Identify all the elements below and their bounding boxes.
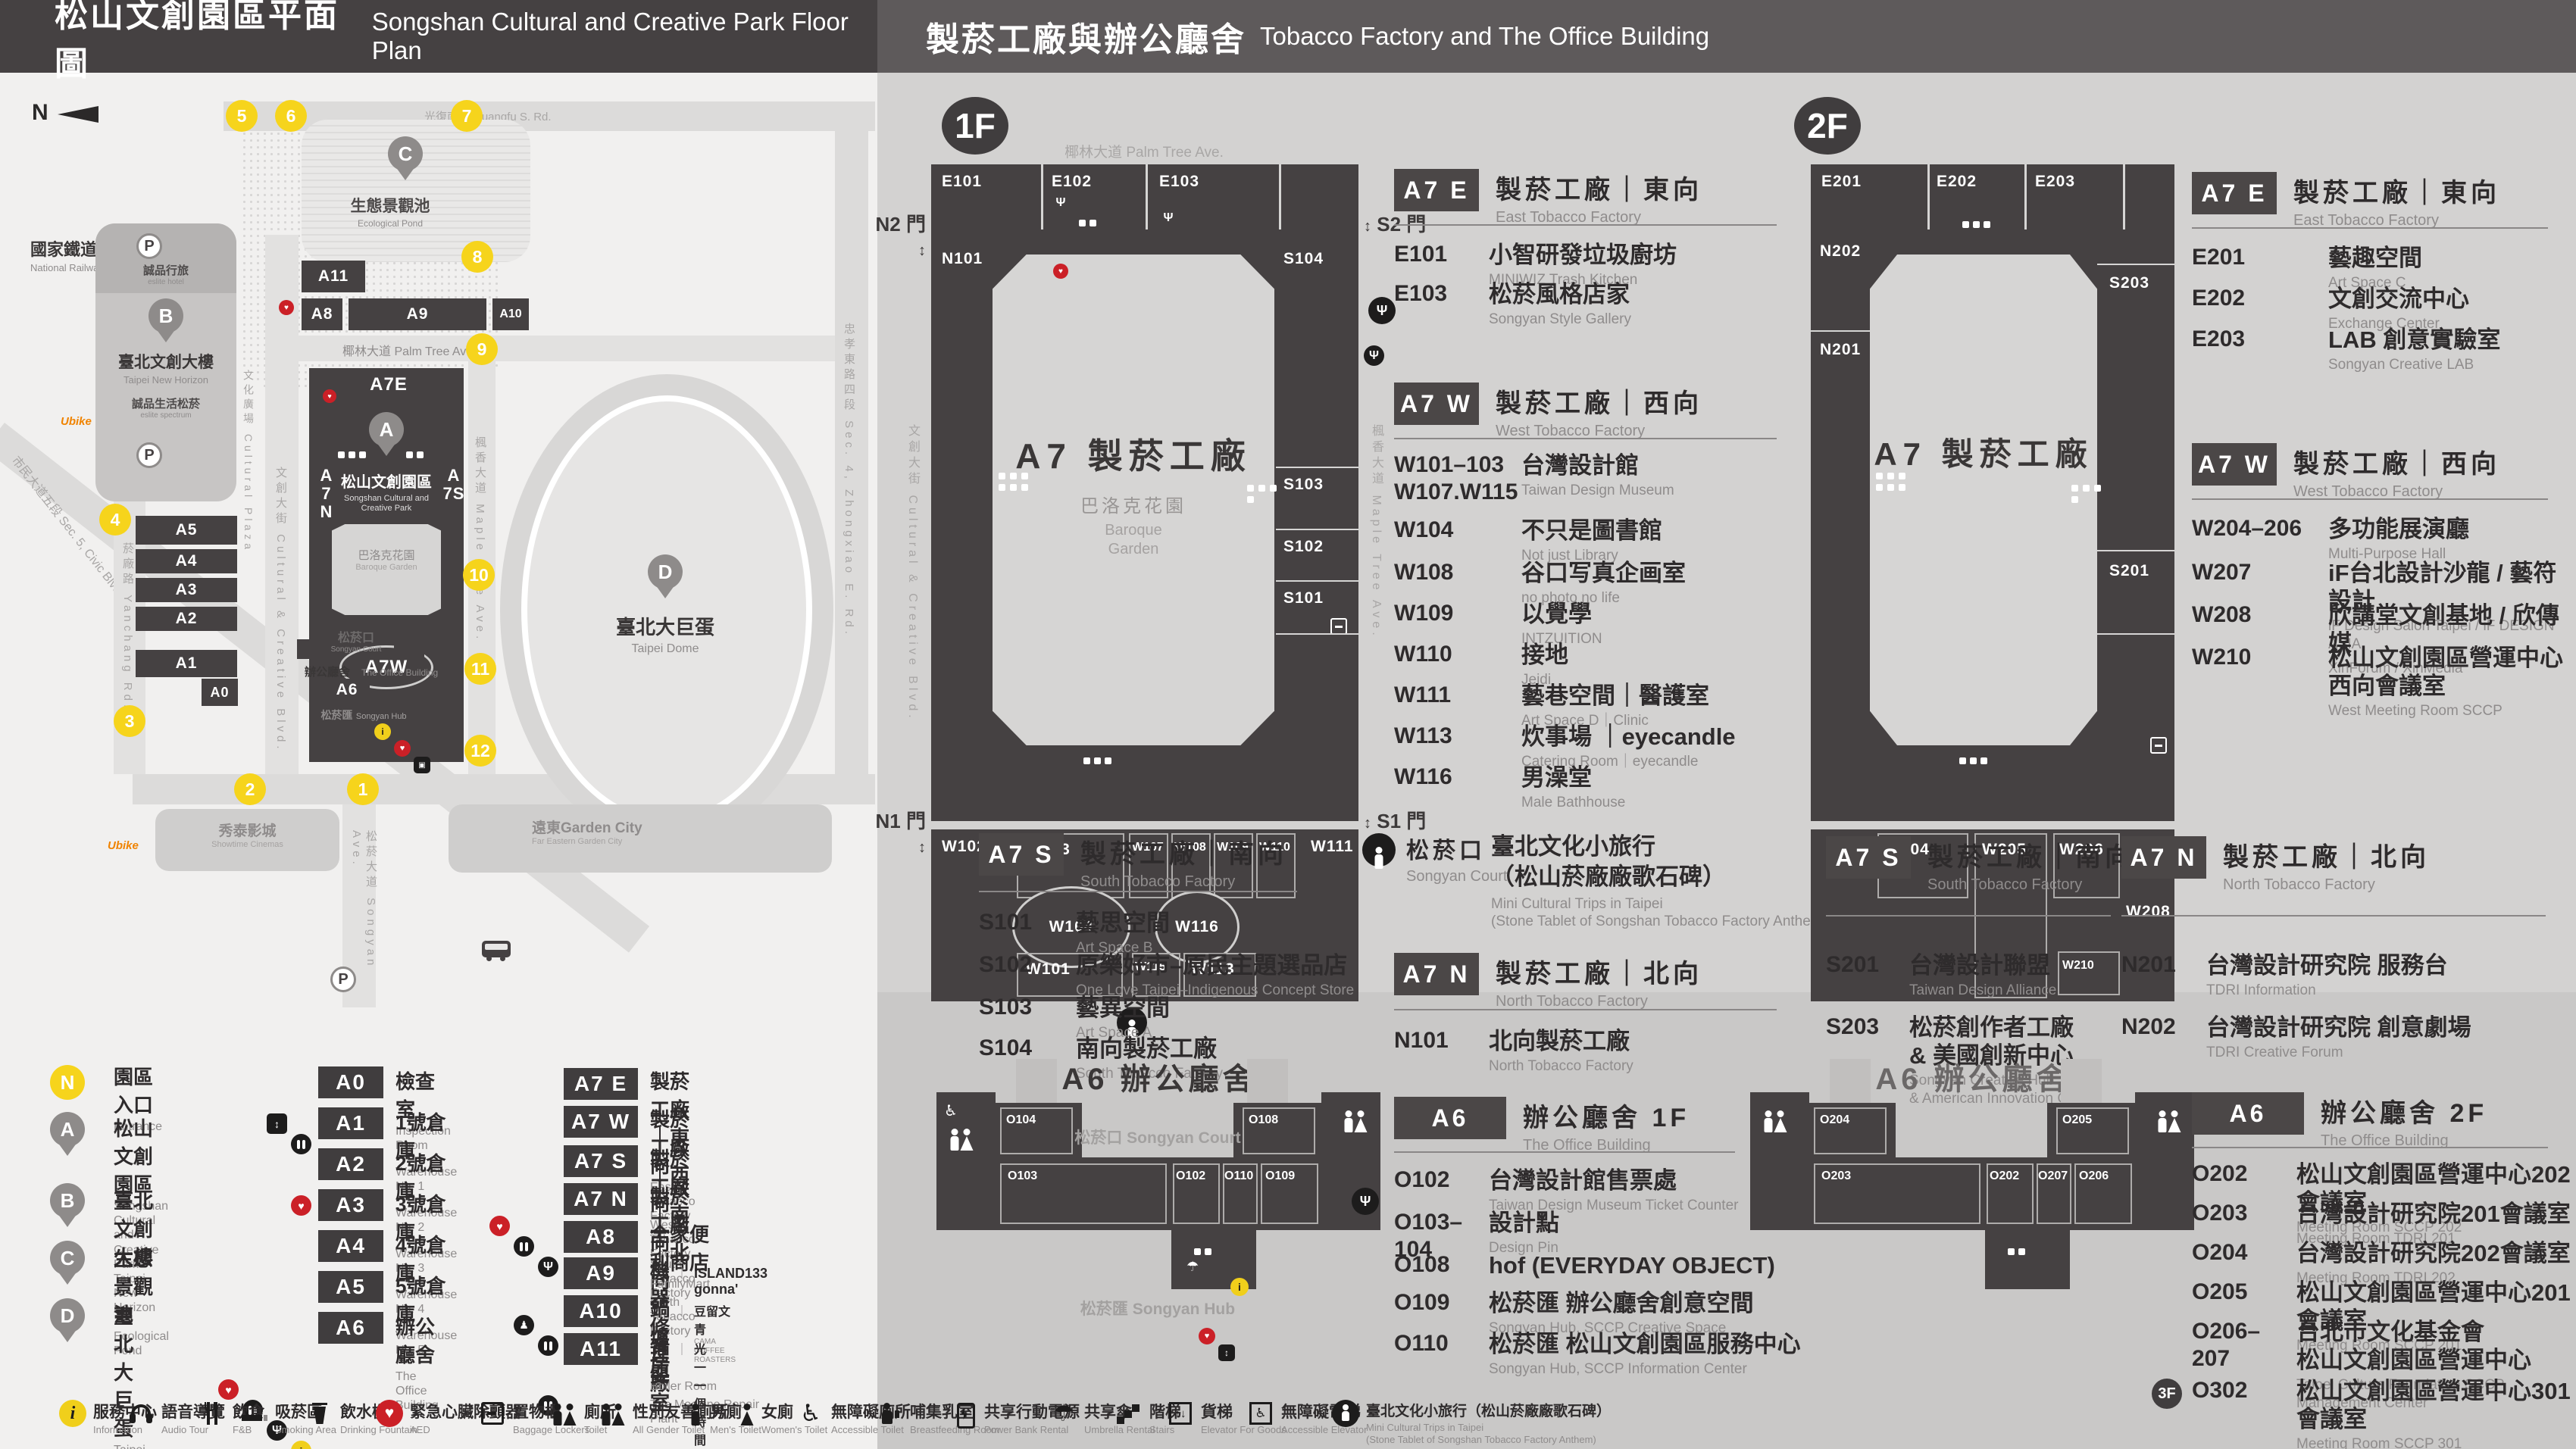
fnb-icon-legend-a7e — [538, 1257, 558, 1277]
legend-a7w-tag: A7 W — [564, 1106, 638, 1138]
scp-map-label: 松山文創園區 Songshan Cultural and Creative Pa… — [317, 470, 456, 514]
legend-a2-tag: A2 — [318, 1148, 383, 1180]
section-tag: A7 E — [2192, 172, 2277, 214]
room-separator — [1927, 164, 1930, 230]
room-separator — [2097, 633, 2174, 635]
legend-a0-tag: A0 — [318, 1066, 383, 1098]
taipei-dome-inner — [521, 395, 812, 824]
court-icon-legend-a7w: ♟ — [514, 1315, 534, 1335]
section-rule — [2192, 498, 2548, 500]
floor-badge-3f: 3F — [2152, 1379, 2182, 1409]
toilet-icons-a6-2f-left — [1759, 1107, 1790, 1132]
map-room-label: O110 — [1224, 1170, 1253, 1183]
songyan-hub-park-label: 松菸匯 Songyan Hub — [318, 707, 409, 723]
entrance-circle-1: 1 — [347, 773, 379, 805]
gate-n1-label: N1 門 ↕ — [865, 806, 926, 857]
strip-item-mini-trip: 臺北文化小旅行（松山菸廠廠歌石碑）Mini Cultural Trips in … — [1332, 1400, 1611, 1445]
block-a8: A8 — [302, 298, 342, 330]
legend-a1-tag: A1 — [318, 1107, 383, 1139]
legend-a6-tag: A6 — [318, 1312, 383, 1344]
section-rule — [1394, 438, 1777, 439]
smoking-area-icon — [241, 1400, 268, 1427]
toilet-icon-legend-a1 — [291, 1134, 311, 1154]
map-room-label: O204 — [1820, 1113, 1849, 1127]
garden-city-zh: 遠東Garden City — [532, 817, 832, 837]
list-row: W204–206多功能展演廳Multi-Purpose Hall — [2192, 515, 2469, 564]
hub-zh: 松菸匯 — [320, 709, 352, 721]
audio-tour-icon — [127, 1400, 155, 1427]
legend-a10-tag: A10 — [564, 1295, 638, 1327]
legend-marker-a: A — [50, 1112, 85, 1147]
map-room-label: S101 — [1283, 589, 1324, 607]
locker-icon-map: ▣ — [414, 757, 430, 773]
section-tag: A7 W — [2192, 443, 2277, 486]
map-room-label: O104 — [1006, 1113, 1036, 1127]
mens-toilet-icon — [688, 1400, 703, 1427]
locker-icon-2f-s201 — [2150, 737, 2167, 754]
umbrella-rental-icon — [1050, 1400, 1077, 1427]
new-horizon-label: 臺北文創大樓 Taipei New Horizon 誠品生活松菸 eslite … — [98, 350, 233, 420]
map-room-label: O102 — [1176, 1170, 1205, 1183]
map-room-label: E103 — [1159, 173, 1199, 191]
block-a2: A2 — [136, 607, 237, 631]
map-room-label: S102 — [1283, 538, 1324, 556]
fnb-icon-list-e103 — [1364, 345, 1384, 366]
street-blvd-label: 文創大街 Cultural & Creative Blvd. — [273, 467, 289, 753]
facility-cluster-park-2 — [406, 451, 424, 458]
aed-icon-1f: ♥ — [1053, 264, 1068, 279]
section-tag: A6 — [1394, 1097, 1506, 1139]
floor-badge-2f: 2F — [1794, 97, 1861, 155]
compass-arrow-icon — [58, 106, 98, 123]
header-right: 製菸工廠與辦公廳舍 Tobacco Factory and The Office… — [877, 0, 2576, 73]
dome-label: 臺北大巨蛋 Taipei Dome — [589, 612, 741, 656]
map-room-label: S203 — [2109, 274, 2149, 292]
block-a9: A9 — [349, 298, 486, 330]
legend-a9-tag: A9 — [564, 1257, 638, 1289]
map-room-label: N101 — [942, 250, 983, 268]
block-a1: A1 — [136, 650, 237, 677]
info-icon-a6-1f: i — [1230, 1278, 1249, 1296]
blvd-left-label-1f: 文創大街 Cultural & Creative Blvd. — [903, 424, 921, 722]
eslite-hotel-en: eslite hotel — [111, 278, 221, 286]
a7-2f-courtyard — [1870, 255, 2097, 745]
block-a2-label: A2 — [176, 610, 198, 627]
list-row: E103松菸風格店家Songyan Style Gallery — [1394, 280, 1631, 329]
all-gender-toilet-icon — [599, 1400, 626, 1427]
entrance-circle-2: 2 — [234, 773, 266, 805]
showtime-zh: 秀泰影城 — [155, 820, 339, 840]
aed-icon-map-4: ♥ — [394, 740, 411, 757]
block-a8-label: A8 — [311, 305, 333, 323]
legend-a11-tag: A11 — [564, 1333, 638, 1365]
shuttle-arrow-icon: ↕ — [918, 242, 926, 259]
shuttle-arrow-icon: ↕ — [918, 839, 926, 856]
pond-label: 生態景觀池 Ecological Pond — [333, 194, 447, 229]
scp-zh: 松山文創園區 — [317, 470, 456, 492]
entrance-circle-3: 3 — [114, 705, 145, 737]
bus-stop-icon — [482, 941, 511, 957]
map-room-label: O203 — [1821, 1170, 1851, 1183]
a6-1f-chimney-left — [1016, 1059, 1057, 1103]
pin-b: B — [148, 298, 183, 333]
entrance-circle-7: 7 — [451, 100, 483, 132]
womens-toilet-icon — [739, 1400, 755, 1427]
list-row: N101北向製菸工廠North Tobacco Factory — [1394, 1027, 1633, 1076]
room-separator — [2024, 164, 2027, 230]
block-a3-label: A3 — [176, 581, 198, 598]
accessible-elevator-icon — [1247, 1400, 1274, 1427]
facility-cluster-park-1 — [338, 451, 366, 458]
section-tag: A7 N — [1394, 953, 1479, 995]
entrance-circle-6: 6 — [275, 100, 307, 132]
facility-cluster-2f-right — [2071, 485, 2105, 503]
section-a7e-2f: A7 E製菸工廠｜東向East Tobacco Factory — [2192, 172, 2500, 230]
street-yanchang-label: 菸廠路 Yanchang Rd. — [120, 542, 136, 711]
toilet-icon-legend-a7w — [538, 1335, 558, 1356]
block-a5-label: A5 — [176, 521, 198, 539]
breastfeeding-room-icon — [876, 1400, 903, 1427]
legend: N 園區入口Entrance A 松山文創園區Songshan Cultural… — [0, 0, 20, 409]
a6-1f-chimney-right — [1247, 1059, 1288, 1103]
section-a7w-2f: A7 W製菸工廠｜西向West Tobacco Factory — [2192, 443, 2500, 501]
pin-c: C — [388, 136, 423, 171]
map-room-label: E101 — [942, 173, 982, 191]
parking-icon-2: P — [136, 442, 162, 468]
section-rule — [2192, 227, 2548, 229]
palm-ave-label-1f: 椰林大道 Palm Tree Ave. — [1008, 141, 1280, 161]
map-room-label: W111 — [1311, 838, 1354, 856]
room-separator — [1276, 580, 1358, 582]
information-icon — [59, 1400, 86, 1427]
section-a7e-1f: A7 E製菸工廠｜東向East Tobacco Factory — [1394, 169, 1702, 226]
map-room-label: O205 — [2062, 1113, 2092, 1127]
dome-en: Taipei Dome — [589, 642, 741, 656]
entrance-circle-10: 10 — [463, 559, 495, 591]
locker-icon-1f-s101 — [1330, 618, 1347, 635]
aed-icon-map-1: ♥ — [279, 300, 294, 315]
page-title-left-en: Songshan Cultural and Creative Park Floo… — [372, 8, 877, 65]
eslite-store-zh: 誠品生活松菸 — [98, 395, 233, 411]
entrance-circle-4: 4 — [99, 504, 131, 536]
header-left: 松山文創園區平面圖 Songshan Cultural and Creative… — [0, 0, 877, 73]
new-horizon-en: Taipei New Horizon — [98, 374, 233, 386]
block-a6: A6 — [324, 679, 370, 701]
garden-city-en: Far Eastern Garden City — [532, 837, 832, 846]
legend-a8-tag: A8 — [564, 1221, 638, 1253]
maple-right-label-1f: 楓香大道 Maple Tree Ave. — [1367, 424, 1385, 639]
parking-icon-3: P — [330, 967, 356, 992]
toilet-icons-a6-1f-right — [1340, 1107, 1370, 1132]
section-a7s-2f: A7 S製菸工廠｜南向South Tobacco Factory — [1826, 836, 2134, 894]
pond-zh: 生態景觀池 — [333, 194, 447, 217]
facility-cluster-2f-top — [1962, 221, 1990, 228]
page-title-right-zh: 製菸工廠與辦公廳舍 — [926, 12, 1246, 61]
baroque-garden-zh-1f: 巴洛克花園 — [993, 491, 1274, 517]
list-row: O108hof (EVERYDAY OBJECT) — [1394, 1251, 1775, 1282]
shuttle-arrow-icon: ↕ — [1364, 218, 1371, 235]
info-icon-map: i — [374, 723, 391, 740]
aed-icon-map-2: ♥ — [323, 389, 336, 403]
section-rule — [2192, 1147, 2548, 1148]
section-rule — [2121, 915, 2546, 917]
map-room-label: E202 — [1937, 173, 1977, 191]
legend-a6-text: 辦公廳舍The Office Building — [395, 1312, 439, 1413]
section-tag: A6 — [2192, 1092, 2304, 1135]
office-building-park-label: 辦公廳舍 The Office Building — [305, 664, 438, 679]
street-zhongxiao-label: 忠孝東路四段 Sec. 4, Zhongxiao E. Rd. — [841, 323, 857, 638]
list-row: W101–103 W107.W115台灣設計館Taiwan Design Mus… — [1394, 451, 1674, 506]
block-a0: A0 — [202, 679, 238, 706]
block-a7e-label: A7E — [355, 374, 423, 395]
showtime-building: 秀泰影城 Showtime Cinemas — [155, 809, 339, 871]
map-room-label: O103 — [1008, 1170, 1037, 1183]
aed-icon-legend-a7e: ♥ — [489, 1216, 510, 1236]
baroque-zh: 巴洛克花園 — [332, 547, 441, 563]
block-a4-label: A4 — [176, 552, 198, 570]
park-map: N 光復南路 Guangfu S. Rd. 市民大道五段 Sec. 5, Civ… — [0, 73, 877, 1007]
section-a7n-1f: A7 N製菸工廠｜北向North Tobacco Factory — [1394, 953, 1702, 1010]
songyan-court-a6-label: 松菸口 Songyan Court — [1067, 1126, 1249, 1148]
entrance-circle-11: 11 — [464, 653, 496, 685]
list-row: E203LAB 創意實驗室Songyan Creative LAB — [2192, 326, 2500, 374]
page-title-right-en: Tobacco Factory and The Office Building — [1260, 22, 1709, 51]
block-a10-label: A10 — [499, 308, 521, 320]
facility-cluster-2f-bottom — [1959, 757, 1987, 764]
gate-n2-label: N2 門 ↕ — [865, 209, 926, 261]
block-a10: A10 — [492, 298, 529, 330]
map-room-label: W208 — [2126, 903, 2171, 921]
map-room-label: S104 — [1283, 250, 1324, 268]
section-rule — [979, 891, 1297, 892]
room-separator — [2097, 550, 2174, 551]
goods-elevator-icon — [1167, 1400, 1194, 1427]
list-row: W104不只是圖書館Not just Library — [1394, 517, 1662, 565]
map-room-label: E102 — [1052, 173, 1092, 191]
section-rule — [1394, 1151, 1735, 1153]
section-tag: A7 N — [2121, 836, 2206, 879]
legend-a7e-tag: A7 E — [564, 1068, 638, 1100]
facility-cluster-2f-left — [1876, 473, 1909, 491]
toilet-icon-legend-a7e — [514, 1236, 534, 1257]
baroque-en: Baroque Garden — [332, 563, 441, 572]
map-room-label: S201 — [2109, 562, 2149, 580]
section-tag: A7 W — [1394, 383, 1479, 425]
brand-island133: ISLAND133 gonna' — [694, 1266, 767, 1298]
block-a1-label: A1 — [176, 654, 198, 672]
list-row: N202台灣設計研究院 創意劇場TDRI Creative Forum — [2121, 1013, 2471, 1062]
map-room-label: N201 — [1820, 341, 1861, 359]
floor-badge-1f: 1F — [942, 97, 1008, 155]
shuttle-arrow-icon: ↕ — [1364, 815, 1371, 832]
section-a7s-1f: A7 S製菸工廠｜南向South Tobacco Factory — [979, 833, 1287, 891]
elevator-icon-a6-1f: ↕ — [1218, 1344, 1235, 1361]
cultural-plaza-label: 文化廣場 Cultural Plaza — [241, 370, 256, 553]
section-rule — [1394, 224, 1777, 226]
fnb-icon-1f-e102 — [1053, 195, 1068, 211]
legend-marker-b: B — [50, 1183, 85, 1218]
room-separator — [1276, 633, 1358, 635]
section-rule — [1394, 1009, 1777, 1010]
entrance-circle-9: 9 — [466, 333, 498, 365]
room-separator — [1041, 164, 1043, 230]
list-row: S102原樂好市–原民主題選品店One Love Taipei–Indigeno… — [979, 951, 1354, 1000]
ubike-label-2: Ubike — [108, 839, 139, 852]
songyan-hub-a6-label: 松菸匯 Songyan Hub — [1067, 1297, 1249, 1319]
a6-2f-chimney-left — [1830, 1059, 1871, 1103]
mini-cultural-trip-icon — [1332, 1400, 1359, 1427]
compass-label: N — [32, 100, 48, 126]
room-separator — [1279, 164, 1281, 230]
baroque-garden-en-1f: Baroque Garden — [993, 521, 1274, 559]
toilet-icon — [550, 1400, 577, 1427]
list-row: W210松山文創園區營運中心 西向會議室West Meeting Room SC… — [2192, 644, 2563, 720]
garden-city-building: 遠東Garden City Far Eastern Garden City — [449, 804, 832, 873]
section-a6-2f: A6辦公廳舍 2FThe Office Building — [2192, 1092, 2487, 1150]
section-tag: A7 S — [979, 833, 1064, 876]
block-a11-label: A11 — [318, 267, 349, 285]
toilet-icons-a6-1f-left — [946, 1126, 976, 1150]
room-separator — [2123, 164, 2125, 230]
aed-icon-legend-a2: ♥ — [291, 1195, 311, 1216]
section-a6-1f: A6辦公廳舍 1FThe Office Building — [1394, 1097, 1690, 1154]
fnb-icon-a6-right: Ψ — [1352, 1188, 1379, 1215]
street-maple-label: 楓香大道 Maple Tree Ave. — [472, 436, 488, 642]
map-room-label: W210 — [2062, 959, 2094, 973]
a6-2f-chimney-right — [2061, 1059, 2102, 1103]
aed-icon-a6-1f: ♥ — [1199, 1328, 1215, 1344]
a7-1f-title: A7 製菸工廠 — [993, 429, 1274, 479]
entrance-circle-8: 8 — [461, 241, 493, 273]
room-separator — [1276, 467, 1358, 468]
scp-en: Songshan Cultural and Creative Park — [317, 494, 456, 514]
list-row: S101藝思空間Art Space B — [979, 909, 1170, 957]
baggage-locker-icon — [479, 1400, 506, 1427]
map-room-label: E203 — [2035, 173, 2075, 191]
block-a0-label: A0 — [210, 685, 229, 700]
facility-cluster-a6-1f-stub — [1194, 1248, 1211, 1255]
block-a11: A11 — [302, 261, 365, 292]
list-row: O302松山文創園區營運中心301會議室Meeting Room SCCP 30… — [2192, 1377, 2576, 1449]
room-separator — [1276, 529, 1358, 530]
songyan-court-attraction: 臺北文化小旅行 （松山菸廠廠歌石碑）Mini Cultural Trips in… — [1491, 832, 1827, 931]
map-room-label: O207 — [2038, 1170, 2068, 1183]
info-icon-legend-a6: i — [291, 1441, 311, 1449]
entrance-circle-12: 12 — [464, 735, 496, 767]
hub-en: Songyan Hub — [356, 712, 407, 721]
room-box-w210 — [2058, 951, 2120, 995]
legend-a7n-tag: A7 N — [564, 1183, 638, 1215]
umbrella-icon-a6-1f: ☂ — [1186, 1259, 1199, 1275]
a6-2f-stub — [1985, 1230, 2070, 1289]
block-a5: A5 — [136, 516, 237, 545]
section-a7w-1f: A7 W製菸工廠｜西向West Tobacco Factory — [1394, 383, 1702, 440]
block-a3: A3 — [136, 578, 237, 602]
floor-plan-sheet: 松山文創園區平面圖 Songshan Cultural and Creative… — [0, 0, 2576, 1449]
accessible-toilet-icon — [797, 1400, 824, 1427]
dome-zh: 臺北大巨蛋 — [589, 612, 741, 640]
list-row: O110松菸匯 松山文創園區服務中心Songyan Hub, SCCP Info… — [1394, 1330, 1801, 1379]
list-row: N201台灣設計研究院 服務台TDRI Information — [2121, 951, 2448, 1000]
map-room-label: O206 — [2079, 1170, 2109, 1183]
map-room-label: O108 — [1249, 1113, 1278, 1127]
aed-icon — [376, 1400, 403, 1427]
room-separator — [1146, 164, 1148, 230]
facility-cluster-a6-2f-stub — [2008, 1248, 2025, 1255]
a6-wing-right — [394, 639, 424, 659]
list-row: O102台灣設計館售票處Taiwan Design Museum Ticket … — [1394, 1166, 1738, 1215]
showtime-en: Showtime Cinemas — [155, 840, 339, 849]
elevator-icon-legend-a1: ↕ — [267, 1113, 287, 1134]
fnb-icon — [199, 1400, 226, 1427]
pin-d: D — [648, 554, 683, 589]
facility-cluster-1f-top — [1079, 220, 1096, 226]
pin-a: A — [369, 412, 404, 447]
section-tag: A7 S — [1826, 836, 1911, 879]
legend-a7s-tag: A7 S — [564, 1145, 638, 1177]
legend-a5-tag: A5 — [318, 1271, 383, 1303]
room-separator — [1811, 330, 1870, 332]
map-room-label: N202 — [1820, 242, 1861, 261]
map-room-label: E201 — [1821, 173, 1862, 191]
aed-icon-legend-a6: ♥ — [218, 1379, 239, 1400]
block-a9-label: A9 — [407, 305, 429, 323]
stairs-icon — [1115, 1400, 1143, 1427]
accessible-icon-a6-1f: ♿ — [944, 1101, 958, 1120]
a6-wing-left — [297, 639, 327, 659]
pond-en: Ecological Pond — [333, 218, 447, 229]
legend-marker-d: D — [50, 1298, 85, 1333]
legend-marker-c: C — [50, 1241, 85, 1276]
block-a6-label: A6 — [336, 681, 358, 698]
legend-a4-tag: A4 — [318, 1230, 383, 1262]
drinking-fountain-icon — [306, 1400, 333, 1427]
toilet-icons-a6-2f-right — [2153, 1107, 2184, 1132]
map-room-label: W116 — [1175, 918, 1219, 936]
map-room-label: O202 — [1990, 1170, 2019, 1183]
list-row: S201台灣設計聯盟Taiwan Design Alliance — [1826, 951, 2056, 1000]
songyan-court-list-icon — [1362, 833, 1396, 867]
section-a7n-2f: A7 N製菸工廠｜北向North Tobacco Factory — [2121, 836, 2430, 894]
new-horizon-zh: 臺北文創大樓 — [98, 350, 233, 373]
eslite-hotel-zh: 誠品行旅 — [111, 262, 221, 278]
a7-2f-title: A7 製菸工廠 — [1870, 429, 2097, 475]
map-room-label: S103 — [1283, 476, 1324, 494]
fnb-icon-1f-right: Ψ — [1368, 297, 1396, 324]
fnb-icon-1f-e103 — [1161, 211, 1176, 226]
eslite-store-en: eslite spectrum — [98, 411, 233, 420]
street-palm-label: 椰林大道 Palm Tree Ave. — [342, 341, 477, 359]
parking-icon-1: P — [136, 233, 162, 259]
ubike-label-1: Ubike — [61, 415, 92, 428]
legend-marker-n: N — [50, 1065, 85, 1100]
a7-courtyard-park: 巴洛克花園 Baroque Garden — [332, 524, 441, 615]
power-bank-icon — [950, 1400, 977, 1427]
entrance-circle-5: 5 — [226, 100, 258, 132]
legend-a3-tag: A3 — [318, 1189, 383, 1221]
room-separator — [2097, 264, 2174, 265]
list-row: W116男澡堂Male Bathhouse — [1394, 764, 1625, 812]
facility-cluster-1f-bottom — [1083, 757, 1111, 764]
section-tag: A7 E — [1394, 169, 1479, 211]
map-room-label: O109 — [1265, 1170, 1295, 1183]
block-a4: A4 — [136, 549, 237, 573]
eslite-hotel-label: 誠品行旅 eslite hotel — [111, 262, 221, 286]
section-rule — [1826, 915, 2111, 917]
